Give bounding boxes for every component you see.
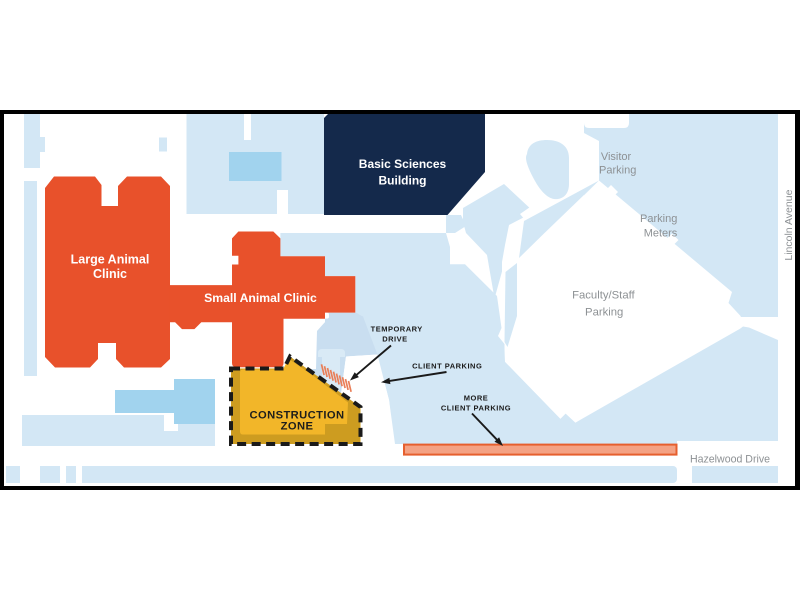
svg-text:Faculty/Staff: Faculty/Staff — [572, 290, 635, 302]
svg-text:Building: Building — [379, 174, 427, 188]
svg-text:Parking: Parking — [585, 306, 623, 318]
svg-text:Small Animal Clinic: Small Animal Clinic — [204, 291, 317, 305]
svg-text:Lincoln Avenue: Lincoln Avenue — [783, 189, 795, 260]
svg-text:Large Animal: Large Animal — [71, 253, 150, 267]
svg-text:CLIENT PARKING: CLIENT PARKING — [412, 362, 482, 371]
svg-text:CLIENT PARKING: CLIENT PARKING — [441, 404, 511, 413]
svg-text:Visitor: Visitor — [601, 151, 632, 163]
svg-text:Parking: Parking — [599, 165, 636, 177]
svg-text:Basic Sciences: Basic Sciences — [359, 157, 447, 171]
svg-text:Parking: Parking — [640, 213, 677, 225]
svg-text:TEMPORARY: TEMPORARY — [371, 325, 423, 334]
svg-text:MORE: MORE — [464, 393, 489, 402]
svg-text:DRIVE: DRIVE — [382, 334, 407, 343]
svg-text:Meters: Meters — [644, 228, 678, 240]
svg-text:Hazelwood Drive: Hazelwood Drive — [690, 454, 770, 466]
svg-text:Clinic: Clinic — [93, 267, 127, 281]
svg-text:ZONE: ZONE — [281, 421, 314, 433]
